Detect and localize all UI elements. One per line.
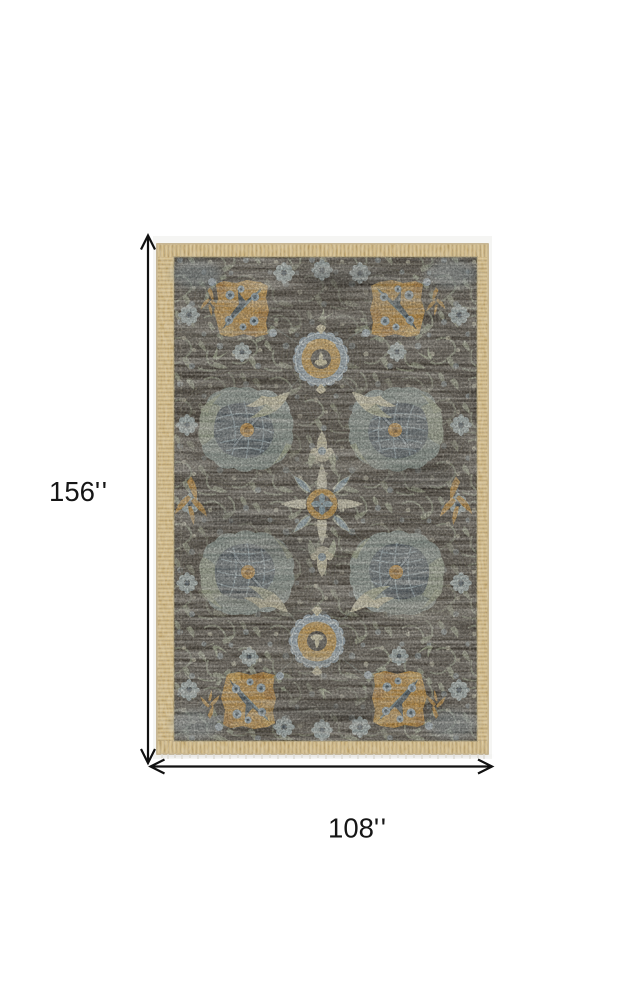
svg-text:108'': 108''	[328, 813, 386, 844]
svg-text:156'': 156''	[49, 476, 107, 507]
